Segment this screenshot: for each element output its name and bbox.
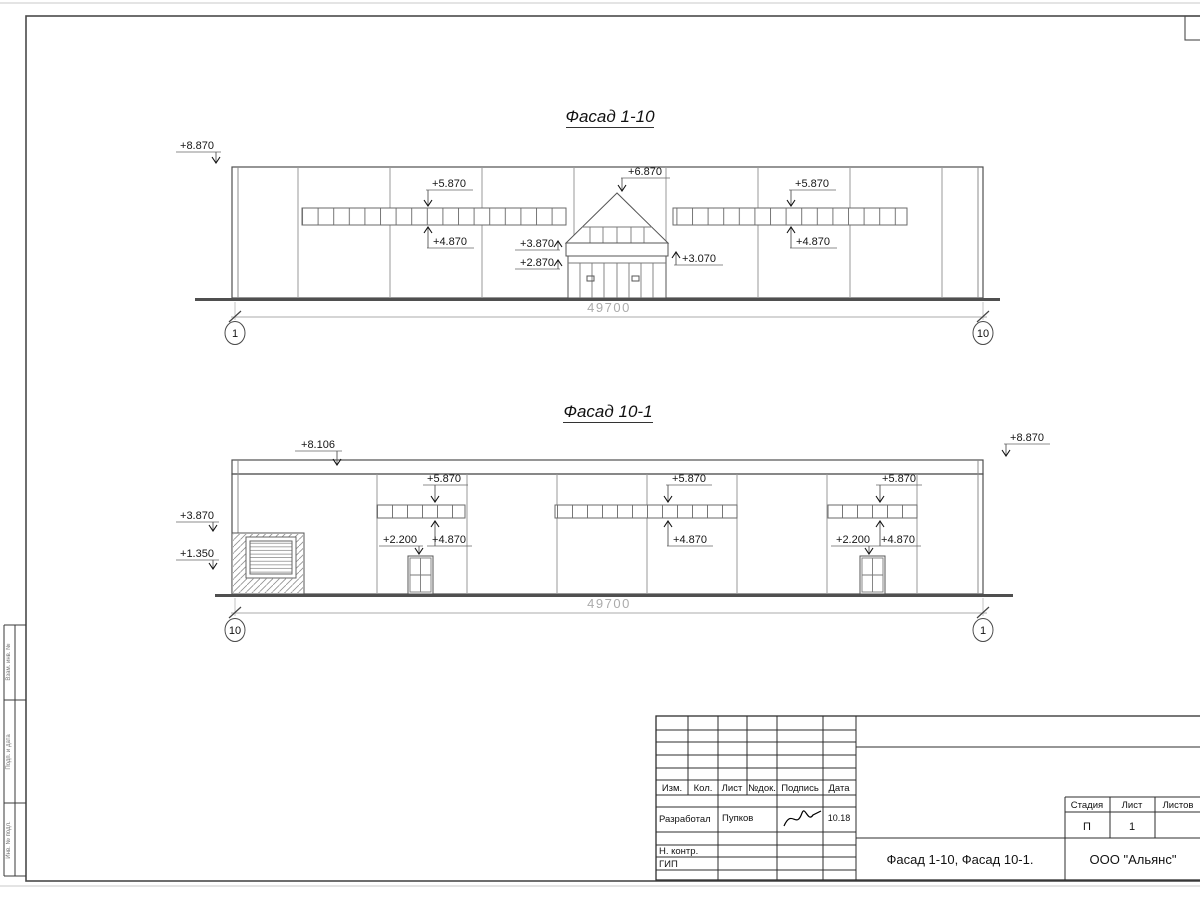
margin-label-vzam: Взам. инв. № [5,643,12,680]
facade2-window-band-3 [828,505,917,518]
stamp-col-list: Лист [722,783,743,794]
facade1-window-band-left [302,208,566,225]
stamp-company: ООО "Альянс" [1090,852,1177,867]
facade1-axis-right: 10 [977,328,989,340]
elevation-mark-label: +5.870 [427,473,461,485]
elevation-mark-label: +8.870 [180,140,214,152]
elevation-mark-label: +1.350 [180,548,214,560]
elevation-mark-label: +4.870 [881,534,915,546]
facade2-door-2 [860,556,885,594]
stamp-developed-name: Пупков [722,813,753,824]
elevation-mark-label: +6.870 [628,166,662,178]
elevation-mark-label: +5.870 [672,473,706,485]
elevation-mark-label: +5.870 [795,178,829,190]
stamp-developed-label: Разработал [659,814,711,825]
elevation-mark-label: +8.106 [301,439,335,451]
stamp-sheets-label: Листов [1163,800,1194,811]
stamp-doc-title: Фасад 1-10, Фасад 10-1. [887,852,1034,867]
stamp-stage-label: Стадия [1071,800,1103,811]
margin-label-podp: Подп. и дата [6,734,12,770]
stamp-col-data: Дата [828,783,850,794]
stamp-col-izm: Изм. [662,783,682,794]
elevation-mark-label: +4.870 [673,534,707,546]
elevation-mark-label: +8.870 [1010,432,1044,444]
elevation-mark-label: +2.870 [520,257,554,269]
facade2-dimension-text: 49700 [587,596,631,611]
roller-shutter [250,541,292,574]
entrance-fascia [566,243,668,256]
margin-label-inv: Инв. № подл. [5,821,12,859]
facade2-axis-left: 10 [229,625,241,637]
elevation-mark-label: +5.870 [882,473,916,485]
drawing-sheet: Взам. инв. № Подп. и дата Инв. № подл. Ф… [0,0,1200,900]
elevation-mark-label: +4.870 [433,236,467,248]
elevation-mark-label: +2.200 [383,534,417,546]
facade2-axis-right: 1 [980,625,986,637]
elevation-mark-label: +5.870 [432,178,466,190]
facade1-window-band-right [673,208,907,225]
stamp-sheet-label: Лист [1122,800,1143,811]
facade2-window-band-2 [555,505,737,518]
stamp-ncontr-label: Н. контр. [659,846,698,857]
facade2-window-band-1 [377,505,465,518]
elevation-mark-label: +4.870 [432,534,466,546]
facade1-title: Фасад 1-10 [565,107,655,126]
elevation-mark-label: +2.200 [836,534,870,546]
facade2-door-1 [408,556,433,594]
stamp-col-ndok: №док. [748,783,776,794]
stamp-stage-value: П [1083,821,1091,833]
elevation-mark-label: +4.870 [796,236,830,248]
elevation-mark-label: +3.070 [682,253,716,265]
facade1-axis-left: 1 [232,328,238,340]
facade1-dimension-text: 49700 [587,300,631,315]
stamp-col-podpis: Подпись [781,783,819,794]
elevation-mark-label: +3.870 [520,238,554,250]
facade2-title: Фасад 10-1 [563,402,652,421]
elevation-mark-label: +3.870 [180,510,214,522]
stamp-developed-date: 10.18 [828,813,851,823]
stamp-sheet-value: 1 [1129,821,1135,833]
stamp-gip-label: ГИП [659,859,678,870]
title-block: Изм. Кол. Лист №док. Подпись Дата Разраб… [656,716,1200,880]
facade2-hatched-block [232,533,304,594]
stamp-col-kol: Кол. [694,783,713,794]
